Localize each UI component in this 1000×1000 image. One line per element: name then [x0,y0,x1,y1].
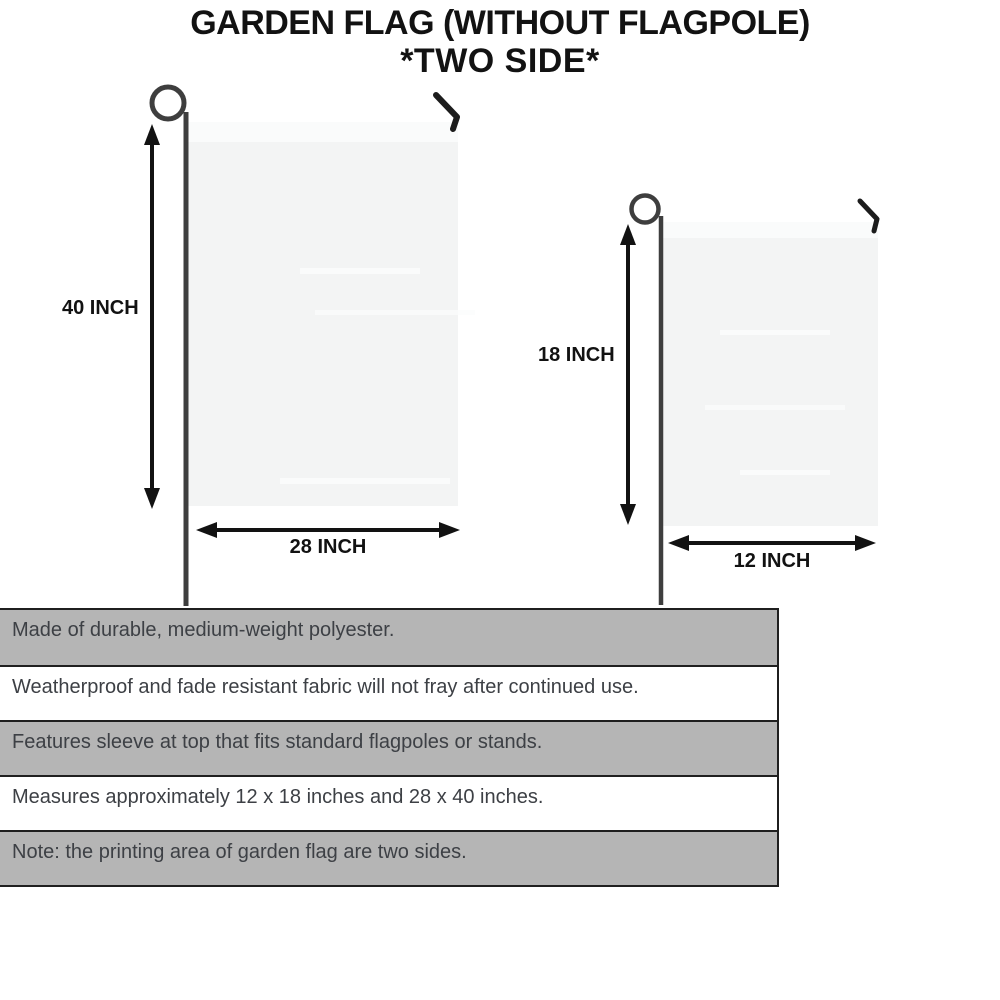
large-flag-sleeve [188,122,458,142]
feature-list: Made of durable, medium-weight polyester… [0,608,779,887]
large-flag-crease [280,478,450,484]
small-flag-height-label: 18 INCH [538,344,615,367]
large-height-arrow [144,124,160,509]
large-flag-crease [300,268,420,274]
small-flag-crease [705,405,845,410]
feature-row-weatherproof: Weatherproof and fade resistant fabric w… [0,665,777,720]
small-width-arrow [668,535,876,551]
small-flag-crease [740,470,830,475]
small-pole-loop [632,196,659,223]
large-pole-loop [152,87,184,119]
small-flag-sleeve [663,222,878,238]
garden-flag-infographic: GARDEN FLAG (WITHOUT FLAGPOLE) *TWO SIDE… [0,0,1000,1000]
flag-diagram-svg [0,0,1000,610]
feature-text: Features sleeve at top that fits standar… [12,731,542,753]
feature-text: Made of durable, medium-weight polyester… [12,619,394,641]
large-flag-width-label: 28 INCH [268,536,388,559]
flag-size-diagram: 40 INCH 28 INCH 18 INCH 12 INCH [0,0,1000,610]
small-flag-crease [720,330,830,335]
feature-row-measurements: Measures approximately 12 x 18 inches an… [0,775,777,830]
small-height-arrow [620,224,636,525]
feature-row-sleeve: Features sleeve at top that fits standar… [0,720,777,775]
large-flag-group [144,87,475,606]
feature-text: Weatherproof and fade resistant fabric w… [12,676,639,698]
small-flag-width-label: 12 INCH [712,550,832,573]
feature-row-note: Note: the printing area of garden flag a… [0,830,777,885]
large-flag-height-label: 40 INCH [62,297,139,320]
small-flag-group [620,196,878,606]
feature-text: Measures approximately 12 x 18 inches an… [12,786,543,808]
small-flag [663,222,878,526]
feature-row-material: Made of durable, medium-weight polyester… [0,610,777,665]
feature-text: Note: the printing area of garden flag a… [12,841,467,863]
large-flag-crease [315,310,475,315]
